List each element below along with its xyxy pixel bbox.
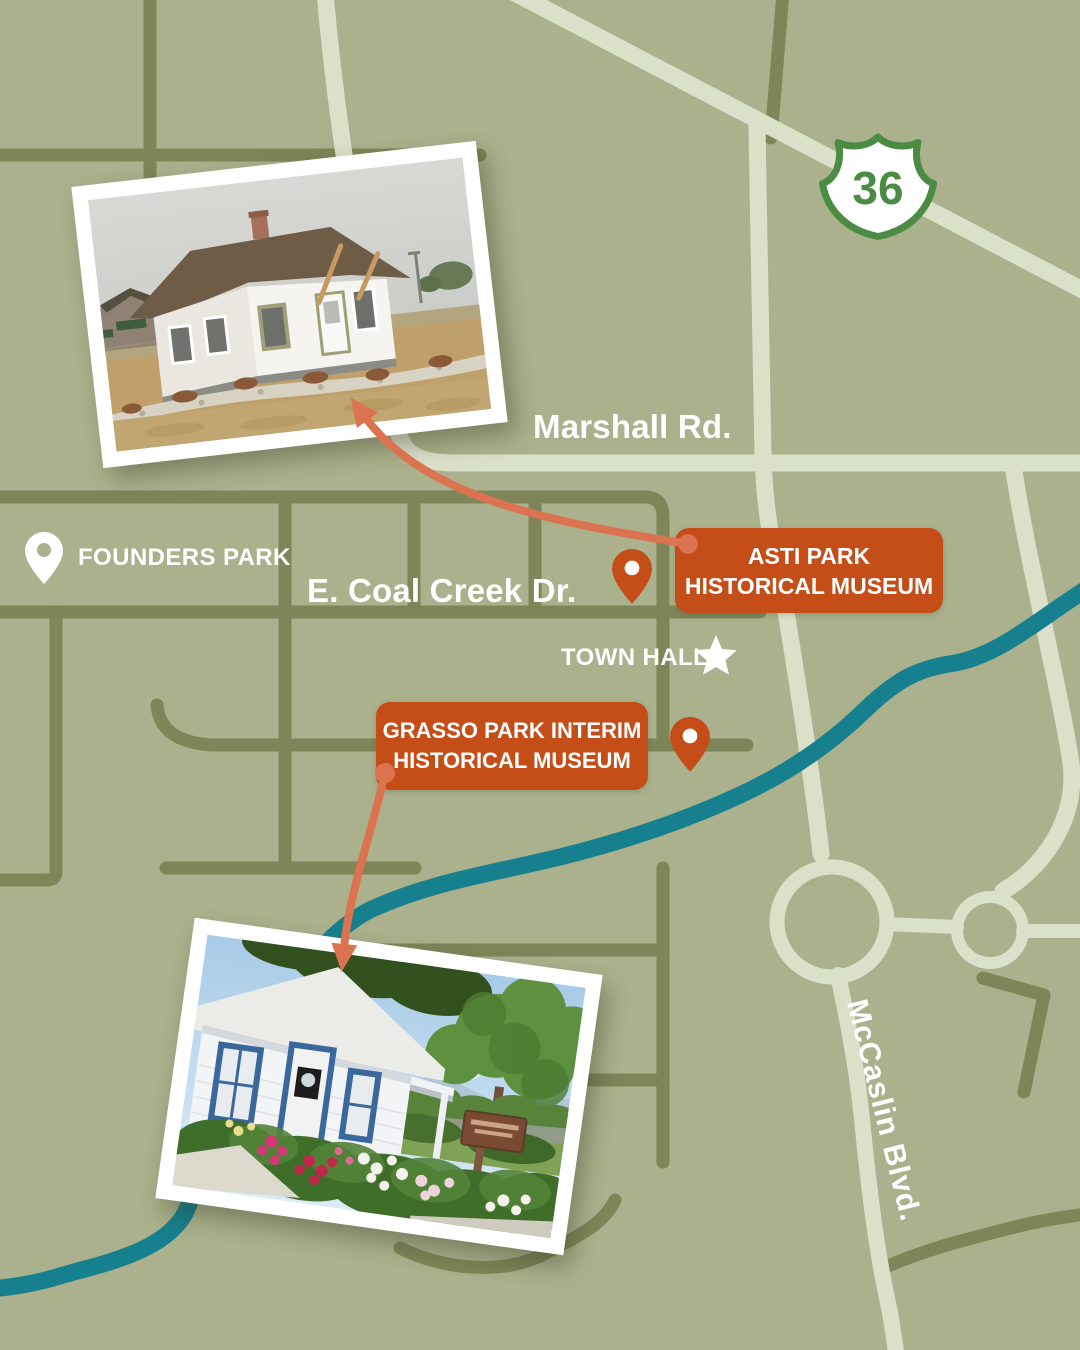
asti-museum-badge[interactable]: ASTI PARK HISTORICAL MUSEUM <box>675 528 943 613</box>
grasso-house-picture <box>172 935 585 1239</box>
town-hall-label: TOWN HALL <box>561 644 708 672</box>
asti-badge-line1: ASTI PARK <box>675 542 943 570</box>
grasso-badge-line2: HISTORICAL MUSEUM <box>376 747 648 775</box>
route-36-road <box>513 0 1080 293</box>
museum-locations-map: 36 <box>0 0 1080 1350</box>
asti-house-picture <box>88 157 491 451</box>
east-connector-road <box>1003 463 1072 891</box>
founders-park-pin-icon[interactable] <box>25 532 63 584</box>
founders-park-label: FOUNDERS PARK <box>78 544 291 572</box>
asti-badge-line2: HISTORICAL MUSEUM <box>675 572 943 600</box>
coal-creek-dr-label: E. Coal Creek Dr. <box>307 572 576 610</box>
grasso-museum-photo <box>155 918 602 1256</box>
asti-museum-photo <box>71 141 507 468</box>
grasso-museum-badge[interactable]: GRASSO PARK INTERIM HISTORICAL MUSEUM <box>376 702 648 790</box>
route-36-shield-icon: 36 <box>823 137 934 237</box>
asti-museum-pin-icon[interactable] <box>612 549 652 604</box>
marshall-rd-label: Marshall Rd. <box>533 408 732 446</box>
grasso-badge-line1: GRASSO PARK INTERIM <box>376 717 648 745</box>
grasso-museum-pin-icon[interactable] <box>670 717 710 772</box>
roundabout-small <box>957 897 1023 963</box>
route-number: 36 <box>852 162 903 214</box>
roundabout-large <box>777 867 887 977</box>
